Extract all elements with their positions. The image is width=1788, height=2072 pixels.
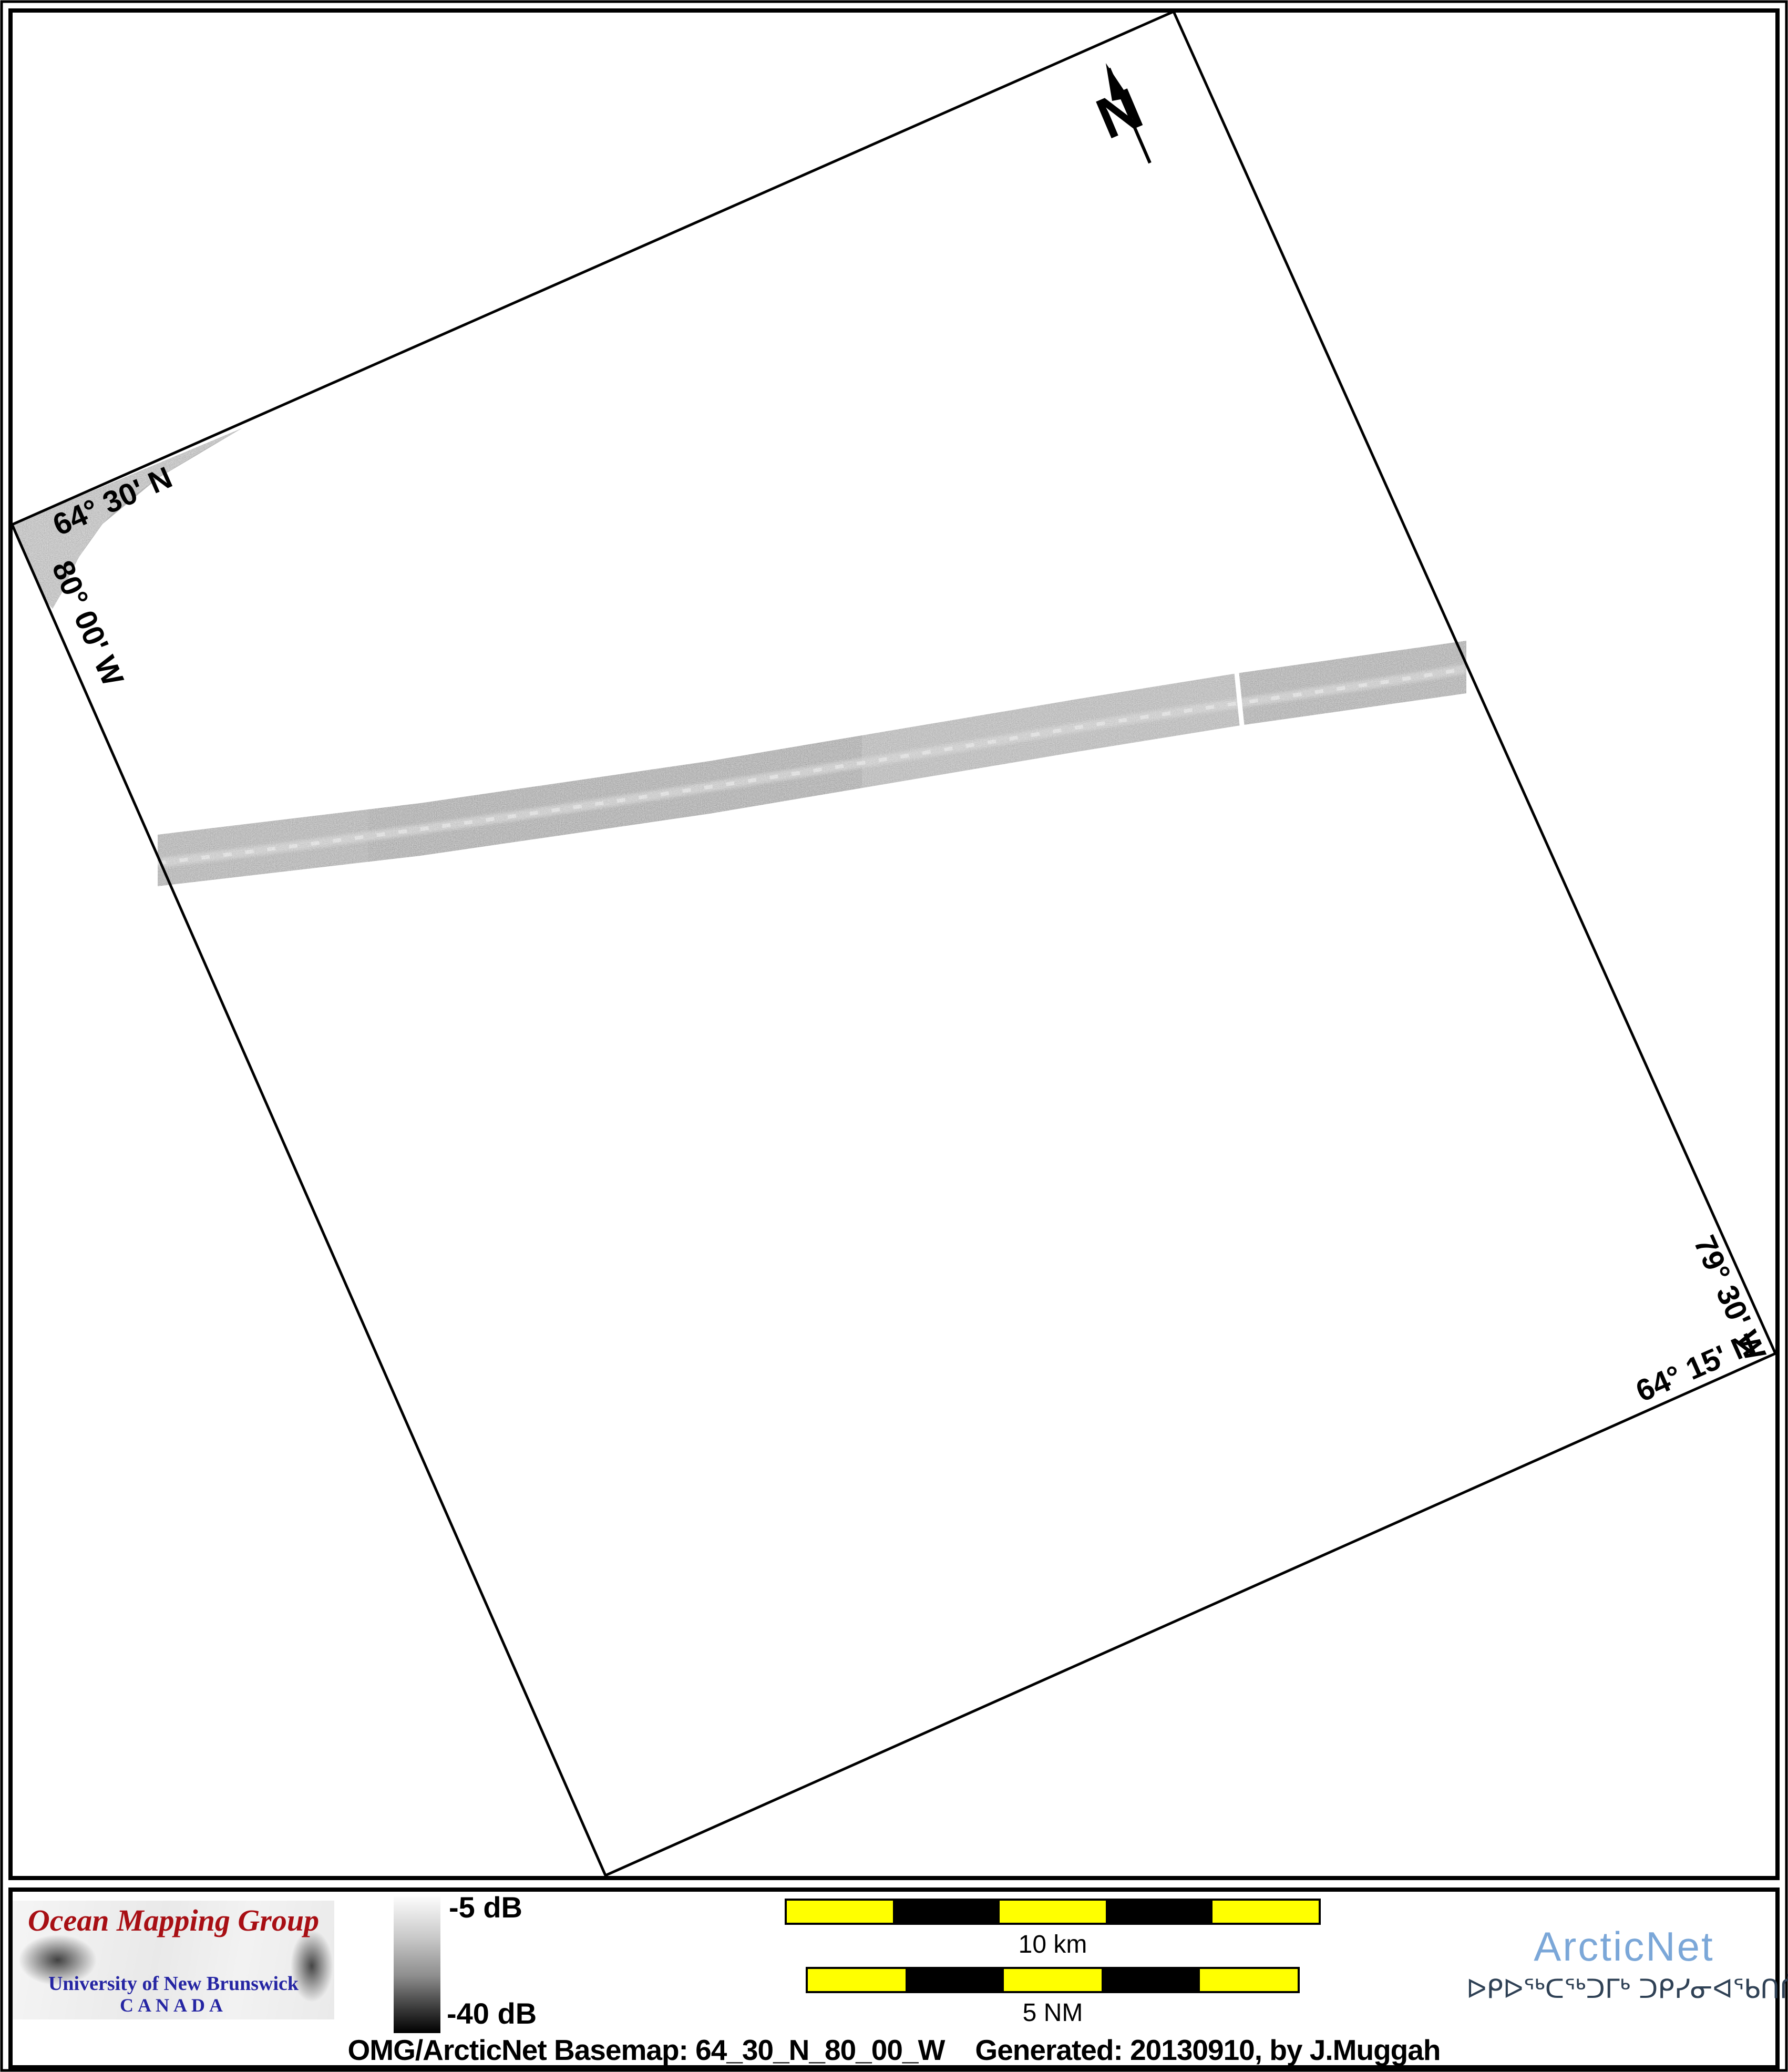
backscatter-legend-gradient: [394, 1896, 440, 2033]
arcticnet-logo: ArcticNet ᐅᑭᐅᖅᑕᖅᑐᒥᒃ ᑐᑭᓯᓂᐊᖃᑎᒌᑦ: [1466, 1923, 1782, 2004]
scalebar-segment: [787, 1901, 893, 1923]
scalebar-segment: [1212, 1901, 1319, 1923]
survey-boundary: [12, 12, 1775, 1875]
caption-generated: Generated: 20130910, by J.Muggah: [975, 2034, 1440, 2066]
legend-min-label: -40 dB: [447, 1996, 537, 2030]
omg-logo-university: University of New Brunswick: [13, 1972, 334, 1995]
scalebar-10km: [785, 1899, 1321, 1925]
label-lon-top-left: 80° 00' W: [45, 556, 130, 691]
scalebar-10km-label: 10 km: [785, 1930, 1321, 1959]
legend-max-label: -5 dB: [449, 1890, 522, 1924]
basemap-page: 64° 30' N 80° 00' W 79° 30' W 64° 15' N …: [0, 0, 1788, 2072]
north-arrow: N: [1087, 63, 1151, 163]
scalebar-segment: [1000, 1901, 1106, 1923]
scalebar-segment: [1004, 1969, 1102, 1991]
scalebar-segment: [906, 1969, 1003, 1991]
omg-logo-title: Ocean Mapping Group: [13, 1903, 334, 1938]
scalebar-5nm-label: 5 NM: [806, 1998, 1300, 2027]
map-box-border: [11, 11, 1777, 1878]
scalebar-segment: [1106, 1901, 1212, 1923]
backscatter-swath: [158, 578, 1470, 904]
map-canvas: 64° 30' N 80° 00' W 79° 30' W 64° 15' N …: [0, 0, 1788, 2072]
basemap-caption: OMG/ArcticNet Basemap: 64_30_N_80_00_WGe…: [8, 2033, 1780, 2067]
caption-basemap-id: OMG/ArcticNet Basemap: 64_30_N_80_00_W: [348, 2034, 945, 2066]
scalebar-segment: [1200, 1969, 1298, 1991]
page-frame: [2, 2, 1786, 2070]
omg-logo-country: CANADA: [13, 1994, 334, 2016]
scalebar-segment: [1102, 1969, 1199, 1991]
backscatter-patch: [12, 428, 242, 609]
scalebar-segment: [808, 1969, 906, 1991]
scalebar-5nm: [806, 1967, 1300, 1993]
arcticnet-wordmark: ArcticNet: [1466, 1923, 1782, 1971]
omg-unb-logo: Ocean Mapping Group University of New Br…: [13, 1901, 334, 2019]
scalebar-segment: [893, 1901, 999, 1923]
arcticnet-syllabics: ᐅᑭᐅᖅᑕᖅᑐᒥᒃ ᑐᑭᓯᓂᐊᖃᑎᒌᑦ: [1466, 1974, 1782, 2004]
